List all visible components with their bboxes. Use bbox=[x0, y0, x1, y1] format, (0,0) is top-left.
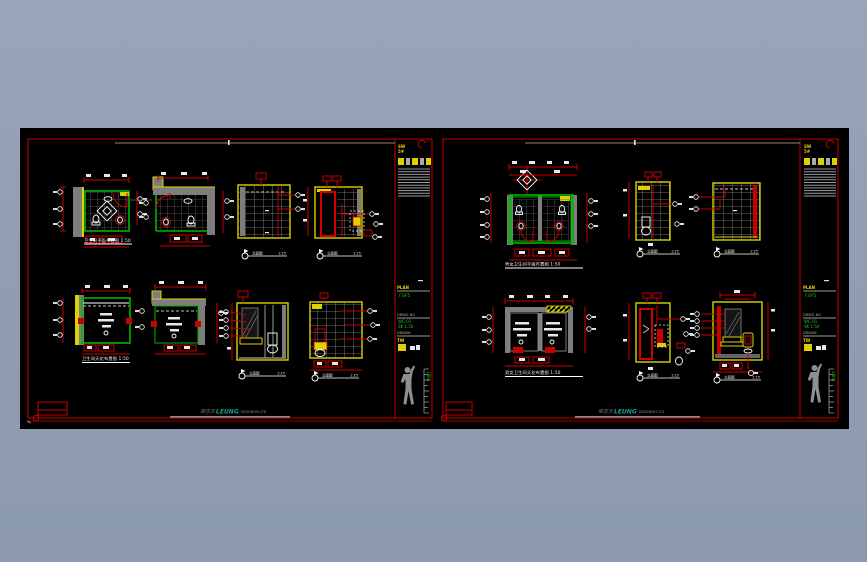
revision-box bbox=[27, 402, 67, 423]
svg-text:DESIGNERS LTD: DESIGNERS LTD bbox=[639, 410, 665, 414]
ceiling-title: 男女卫生间天花布置图 1:50 bbox=[505, 369, 561, 376]
elevation-1: 立面图 1:25 bbox=[238, 173, 305, 259]
elevation-2: 立面图 1:25 bbox=[303, 176, 383, 259]
title-strip: SW 5# PLAN F3/F5 bbox=[397, 144, 431, 413]
block-plan: PLAN F3/F5 bbox=[397, 285, 430, 298]
ceiling-plan-1: 卫生间天花布置图 1:50 bbox=[53, 285, 132, 363]
company-logo: 梁志天 LEUNG DESIGNERS LTD bbox=[170, 408, 290, 418]
elevation-marker: 立面图 1:25 bbox=[239, 369, 286, 379]
elevation-marker: 立面图 1:25 bbox=[637, 371, 680, 381]
svg-text:PLAN: PLAN bbox=[803, 285, 815, 290]
hatch-strip bbox=[547, 306, 571, 312]
svg-text:PLAN: PLAN bbox=[397, 285, 409, 290]
svg-text:立面图: 立面图 bbox=[322, 373, 333, 378]
svg-text:F3/F5: F3/F5 bbox=[805, 293, 816, 298]
svg-text:DRAWN: DRAWN bbox=[397, 331, 411, 335]
svg-text:TW: TW bbox=[397, 338, 405, 343]
svg-text:DRWG NO: DRWG NO bbox=[397, 313, 415, 317]
scale-figure-icon bbox=[401, 366, 415, 405]
elevation-marker: 立面图 1:25 bbox=[242, 249, 287, 259]
svg-text:DRAWN: DRAWN bbox=[803, 331, 817, 335]
svg-text:1:25: 1:25 bbox=[671, 250, 679, 254]
basin-icon bbox=[743, 333, 753, 353]
svg-text:1:25: 1:25 bbox=[350, 374, 358, 378]
svg-text:立面图: 立面图 bbox=[724, 375, 735, 380]
svg-text:梁志天: 梁志天 bbox=[200, 408, 216, 415]
svg-text:F3/F5: F3/F5 bbox=[399, 293, 410, 298]
elevation-3: 立面图 1:25 bbox=[219, 291, 288, 379]
elevation-2: 立面图 1:25 bbox=[689, 183, 760, 257]
plan-title: 卫生间平面布置图 1:50 bbox=[84, 237, 131, 244]
notes-lines bbox=[398, 169, 430, 196]
block-plan: PLAN F3/F5 bbox=[803, 285, 836, 298]
mirror bbox=[242, 308, 258, 338]
elevation-marker: 立面图 1:25 bbox=[714, 373, 761, 383]
sheet-right[interactable]: SW 5# PLAN F3/F5 bbox=[435, 129, 849, 429]
block-drwg-no: DRWG NO WC-01 SK 1:50 bbox=[397, 313, 430, 329]
svg-text:1:25: 1:25 bbox=[278, 252, 286, 256]
svg-text:1:25: 1:25 bbox=[277, 372, 285, 376]
svg-text:1:25: 1:25 bbox=[750, 250, 758, 254]
svg-text:1:25: 1:25 bbox=[752, 376, 760, 380]
scale-figure-icon bbox=[808, 364, 822, 403]
cad-viewport: SW 5# PLAN F3/F5 bbox=[0, 0, 867, 562]
legend-blocks bbox=[804, 158, 837, 165]
elevation-marker: 立面图 1:25 bbox=[317, 249, 362, 259]
svg-text:1:25: 1:25 bbox=[671, 374, 679, 378]
svg-text:立面图: 立面图 bbox=[249, 371, 260, 376]
elevation-1: 立面图 1:25 bbox=[623, 172, 684, 257]
elevation-4: 立面图 1:25 bbox=[310, 293, 380, 381]
svg-text:TW: TW bbox=[803, 338, 811, 343]
elevation-4: 立面图 1:25 bbox=[690, 290, 775, 383]
svg-text:1800: 1800 bbox=[426, 371, 431, 382]
floor-plan-2 bbox=[130, 172, 234, 246]
svg-text:立面图: 立面图 bbox=[724, 249, 735, 254]
svg-text:LEUNG: LEUNG bbox=[614, 409, 637, 416]
title-strip: SW 5# PLAN F3/F5 bbox=[803, 144, 837, 413]
svg-text:1:25: 1:25 bbox=[353, 252, 361, 256]
tile-diamond-icon bbox=[513, 165, 541, 195]
svg-text:立面图: 立面图 bbox=[647, 373, 658, 378]
svg-text:5#: 5# bbox=[398, 149, 405, 154]
svg-text:立面图: 立面图 bbox=[252, 251, 263, 256]
notes-lines bbox=[804, 169, 836, 196]
floor-plan-1: 卫生间平面布置图 1:50 bbox=[53, 174, 147, 247]
svg-text:1800: 1800 bbox=[831, 371, 836, 382]
block-drawn-by: DRAWN TW bbox=[397, 331, 430, 351]
svg-text:DRWG NO: DRWG NO bbox=[803, 313, 821, 317]
legend-blocks bbox=[398, 158, 431, 165]
double-ceiling-plan: 男女卫生间天花布置图 1:50 bbox=[482, 295, 596, 377]
svg-text:SK 1:50: SK 1:50 bbox=[804, 324, 820, 329]
elevation-marker: 立面图 1:25 bbox=[637, 247, 680, 257]
sheet-left[interactable]: SW 5# PLAN F3/F5 bbox=[20, 129, 435, 429]
elevation-marker: 立面图 1:25 bbox=[312, 371, 359, 381]
block-drwg-no: DRWG NO WC-01 SK 1:50 bbox=[803, 313, 836, 329]
ceiling-plan-2 bbox=[135, 281, 228, 354]
sheet-border bbox=[28, 139, 432, 421]
company-logo: 梁志天 LEUNG DESIGNERS LTD bbox=[575, 408, 700, 418]
svg-text:立面图: 立面图 bbox=[327, 251, 338, 256]
svg-text:DESIGNERS LTD: DESIGNERS LTD bbox=[241, 410, 267, 414]
block-drawn-by: DRAWN TW bbox=[803, 331, 836, 351]
svg-text:梁志天: 梁志天 bbox=[598, 408, 614, 415]
plan-title: 男女卫生间平面布置图 1:50 bbox=[505, 261, 561, 268]
svg-text:SK 1:50: SK 1:50 bbox=[398, 324, 414, 329]
jug-symbol-icon bbox=[676, 357, 683, 365]
svg-text:5#: 5# bbox=[804, 149, 811, 154]
double-floor-plan: 男女卫生间平面布置图 1:50 bbox=[480, 161, 598, 268]
ceiling-title: 卫生间天花布置图 1:50 bbox=[82, 355, 129, 362]
svg-text:立面图: 立面图 bbox=[647, 249, 658, 254]
svg-text:LEUNG: LEUNG bbox=[216, 409, 239, 416]
elevation-3: 立面图 1:25 bbox=[623, 293, 695, 381]
north-curl-icon bbox=[418, 140, 426, 148]
elevation-marker: 立面图 1:25 bbox=[714, 247, 759, 257]
north-curl-icon bbox=[826, 140, 834, 148]
